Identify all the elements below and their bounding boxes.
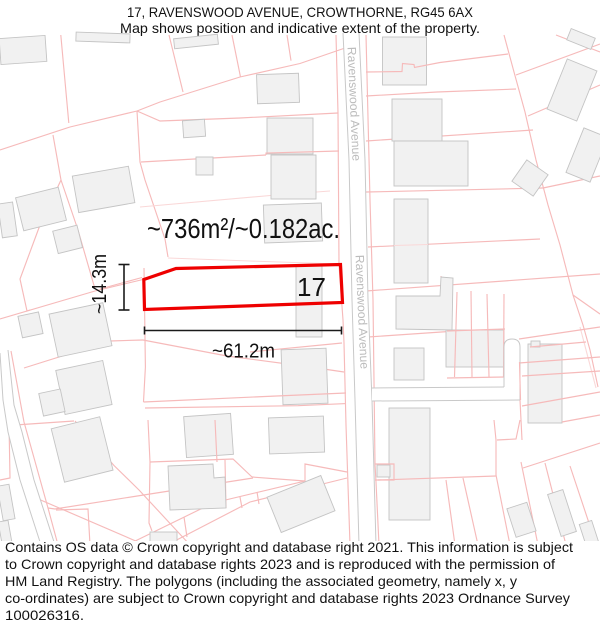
svg-text:to Crown copyright and databas: to Crown copyright and database rights 2…: [5, 557, 555, 572]
svg-text:17, RAVENSWOOD AVENUE, CROWTHO: 17, RAVENSWOOD AVENUE, CROWTHORNE, RG45 …: [127, 5, 473, 20]
svg-text:~736m²/~0.182ac.: ~736m²/~0.182ac.: [147, 213, 340, 244]
svg-text:~61.2m: ~61.2m: [212, 341, 275, 363]
svg-text:Contains OS data © Crown copyr: Contains OS data © Crown copyright and d…: [5, 540, 573, 555]
svg-text:17: 17: [297, 272, 326, 302]
svg-text:HM Land Registry. The polygons: HM Land Registry. The polygons (includin…: [5, 574, 517, 589]
svg-text:Map shows position and indicat: Map shows position and indicative extent…: [120, 21, 480, 36]
svg-text:co-ordinates) are subject to C: co-ordinates) are subject to Crown copyr…: [5, 591, 570, 606]
svg-text:100026316.: 100026316.: [5, 608, 84, 623]
svg-text:~14.3m: ~14.3m: [89, 254, 111, 314]
